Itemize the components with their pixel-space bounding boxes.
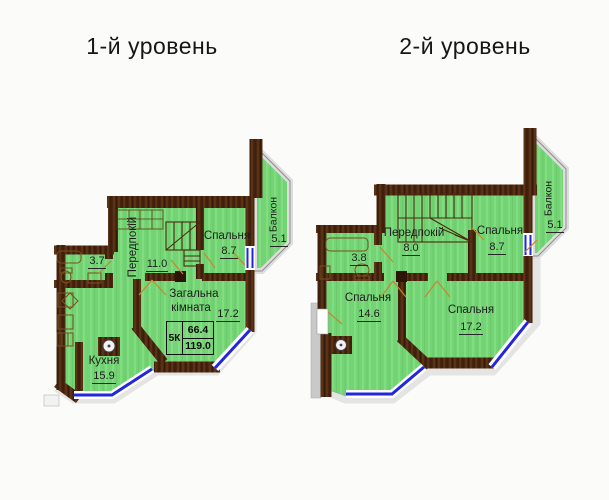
room-label-hall-l2: Передпокій <box>369 227 459 239</box>
stamp-living-area: 66.4 <box>183 322 213 339</box>
room-area-living-l1: 17.2 <box>208 309 248 321</box>
room-area-balcony-l1: 5.1 <box>259 234 299 246</box>
room-label-living-line1-l1: Загальна <box>154 288 234 300</box>
floor-plan-page: 1-й уровень 2-й уровень Передпокій 11.0 … <box>0 0 609 500</box>
room-area-bedroom-right-l2: 17.2 <box>451 322 491 334</box>
room-area-kitchen-l1: 15.9 <box>84 371 124 383</box>
room-area-bathroom-l1: 3.7 <box>77 256 117 268</box>
room-label-bedroom-l1: Спальня <box>197 230 257 242</box>
room-label-bedroom-top-l2: Спальня <box>470 225 530 237</box>
room-area-balcony-l2: 5.1 <box>535 220 575 232</box>
room-area-hall-l2: 8.0 <box>391 243 431 255</box>
stamp-rooms-code: 5К <box>167 322 183 354</box>
apartment-stamp-table: 5К 66.4 119.0 <box>166 321 214 355</box>
level2-title: 2-й уровень <box>385 33 545 60</box>
room-label-bedroom-right-l2: Спальня <box>439 304 503 316</box>
room-label-kitchen-l1: Кухня <box>74 355 134 367</box>
floor-plan-drawing <box>0 0 609 500</box>
room-area-hall-l1: 11.0 <box>137 259 177 271</box>
room-label-bedroom-left-l2: Спальня <box>336 292 400 304</box>
room-area-bedroom-l1: 8.7 <box>209 246 249 258</box>
room-label-hall-l1: Передпокій <box>127 202 139 292</box>
room-area-bedroom-top-l2: 8.7 <box>477 242 517 254</box>
level1-title: 1-й уровень <box>72 33 232 60</box>
room-area-bedroom-left-l2: 14.6 <box>349 309 389 321</box>
stamp-total-area: 119.0 <box>183 339 213 355</box>
room-area-bathroom-l2: 3.8 <box>339 253 379 265</box>
